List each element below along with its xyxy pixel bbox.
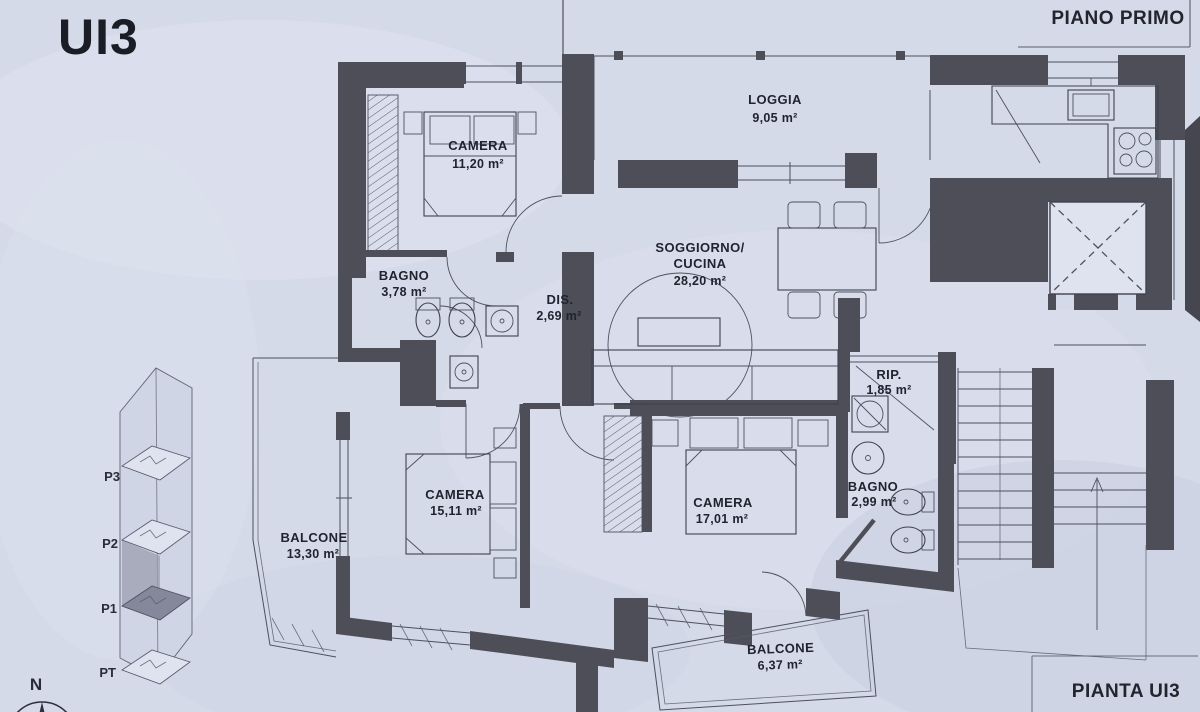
floor-key-p3: P3 bbox=[104, 469, 120, 484]
svg-text:DIS.: DIS. bbox=[547, 292, 574, 307]
svg-text:15,11 m²: 15,11 m² bbox=[430, 504, 482, 518]
svg-text:9,05 m²: 9,05 m² bbox=[752, 111, 797, 125]
svg-text:2,99 m²: 2,99 m² bbox=[851, 495, 896, 509]
svg-text:3,78 m²: 3,78 m² bbox=[381, 285, 426, 299]
svg-text:CAMERA: CAMERA bbox=[448, 138, 508, 153]
scanned-floor-plan-sheet: P3 P2 P1 PT N CAMERA 11,20 m² LOGGIA 9,0… bbox=[0, 0, 1200, 712]
plan-caption: PIANTA UI3 bbox=[1072, 681, 1180, 702]
svg-text:BAGNO: BAGNO bbox=[848, 479, 898, 494]
svg-text:BALCONE: BALCONE bbox=[280, 530, 347, 545]
svg-text:1,85 m²: 1,85 m² bbox=[866, 383, 911, 397]
svg-text:LOGGIA: LOGGIA bbox=[748, 92, 802, 107]
floor-key-pt: PT bbox=[99, 665, 116, 680]
floor-plan-canvas: P3 P2 P1 PT N CAMERA 11,20 m² LOGGIA 9,0… bbox=[0, 0, 1200, 712]
svg-text:SOGGIORNO/: SOGGIORNO/ bbox=[655, 240, 744, 255]
svg-text:13,30 m²: 13,30 m² bbox=[287, 547, 339, 561]
compass-north-label: N bbox=[30, 675, 42, 694]
shaft-void bbox=[1050, 202, 1146, 294]
svg-text:CUCINA: CUCINA bbox=[674, 256, 727, 271]
svg-text:11,20 m²: 11,20 m² bbox=[452, 157, 504, 171]
svg-text:17,01 m²: 17,01 m² bbox=[696, 512, 748, 526]
wardrobe-drawing bbox=[604, 416, 642, 532]
floor-title: PIANO PRIMO bbox=[1051, 8, 1184, 29]
svg-text:BAGNO: BAGNO bbox=[379, 268, 429, 283]
floor-key-p2: P2 bbox=[102, 536, 118, 551]
svg-text:CAMERA: CAMERA bbox=[693, 495, 753, 510]
svg-text:2,69 m²: 2,69 m² bbox=[536, 309, 581, 323]
svg-text:6,37 m²: 6,37 m² bbox=[757, 657, 803, 673]
svg-text:CAMERA: CAMERA bbox=[425, 487, 485, 502]
unit-code-title: UI3 bbox=[58, 9, 139, 65]
svg-text:RIP.: RIP. bbox=[876, 367, 901, 382]
svg-text:BALCONE: BALCONE bbox=[747, 640, 815, 657]
floor-key-p1: P1 bbox=[101, 601, 117, 616]
svg-text:28,20 m²: 28,20 m² bbox=[674, 274, 726, 288]
wardrobe-drawing bbox=[368, 95, 398, 251]
